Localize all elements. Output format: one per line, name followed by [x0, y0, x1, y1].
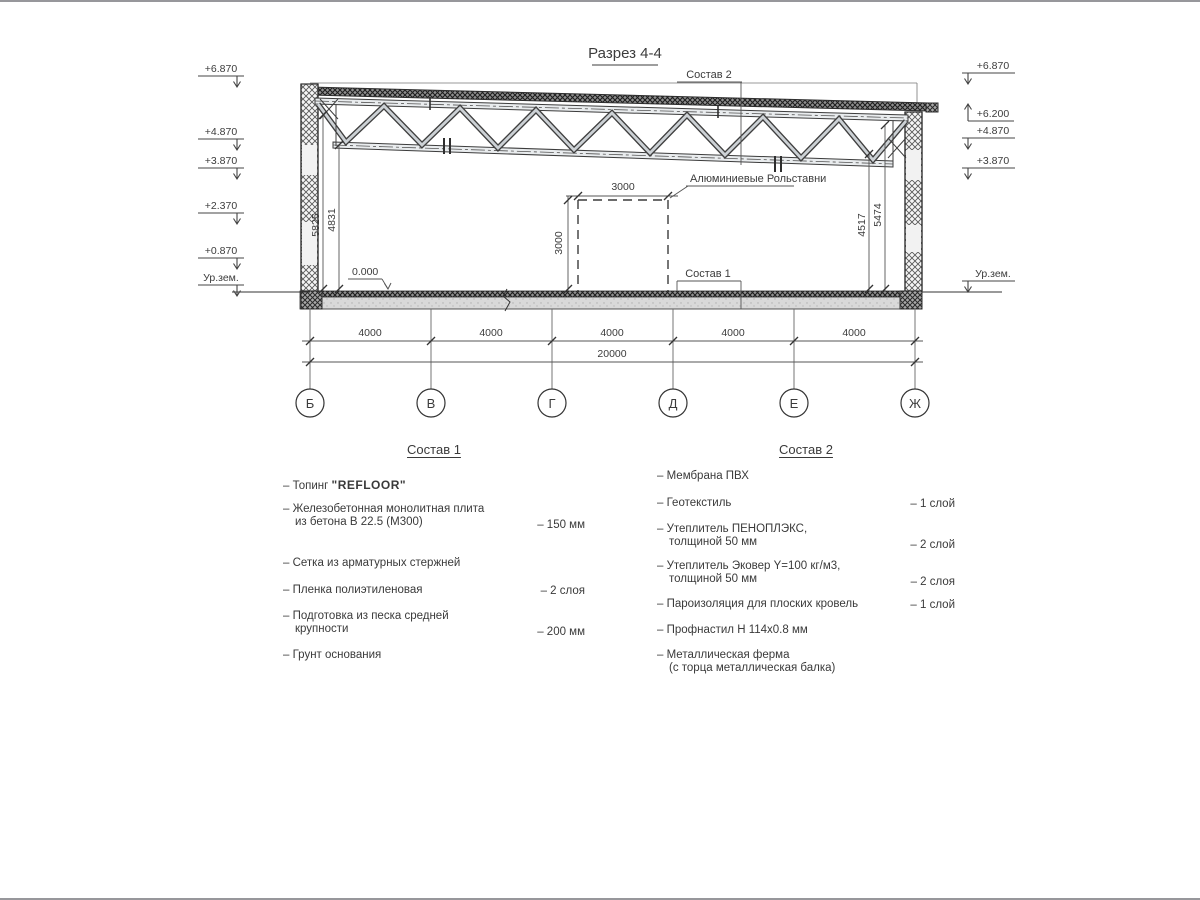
list-item: – Подготовка из песка средней крупности … [283, 610, 585, 639]
elev-left-0: +6.870 [198, 63, 244, 87]
bottom-dimensions: 4000 4000 4000 4000 4000 20000 [302, 309, 923, 389]
svg-text:Ур.зем.: Ур.зем. [203, 272, 239, 284]
right-footing [900, 291, 922, 309]
item-value: – 200 мм [537, 626, 585, 639]
elev-left-3: +2.370 [198, 200, 244, 224]
right-wall [905, 112, 922, 291]
axis-zh: Ж [909, 396, 921, 411]
door-width-dim: 3000 [611, 181, 635, 193]
list-item: – Железобетонная монолитная плита из бет… [283, 503, 585, 532]
floor-slab [232, 289, 1002, 311]
list-item: – Металлическая ферма (с торца металличе… [657, 649, 955, 678]
axis-b: Б [306, 396, 315, 411]
svg-text:+2.370: +2.370 [205, 200, 238, 212]
left-footing [301, 291, 322, 309]
axis-g: Г [548, 396, 555, 411]
elev-left-4: +0.870 [198, 245, 244, 269]
list-item: – Топинг "REFLOOR" [283, 479, 585, 493]
composition-1-title: Состав 1 [283, 443, 585, 456]
elev-right-2: +4.870 [962, 125, 1015, 149]
item-value: – 150 мм [537, 519, 585, 532]
dim-5825: 5825 [310, 213, 322, 237]
roof-edge-cap [926, 103, 938, 112]
span-dim-1: 4000 [358, 327, 382, 339]
svg-text:Состав 1: Состав 1 [685, 268, 731, 280]
svg-text:+4.870: +4.870 [205, 126, 238, 138]
svg-text:+0.870: +0.870 [205, 245, 238, 257]
brand-name: "REFLOOR" [332, 478, 407, 492]
svg-text:+4.870: +4.870 [977, 125, 1010, 137]
list-item: – Пленка полиэтиленовая – 2 слоя [283, 584, 585, 598]
section-drawing: Разрез 4-4 [0, 0, 1200, 440]
svg-text:+3.870: +3.870 [977, 155, 1010, 167]
list-item: – Профнастил Н 114х0.8 мм [657, 624, 955, 638]
svg-text:Ур.зем.: Ур.зем. [975, 268, 1011, 280]
svg-text:+6.200: +6.200 [977, 108, 1010, 120]
span-dim-5: 4000 [842, 327, 866, 339]
composition-2-list: Состав 2 – Мембрана ПВХ – Геотекстиль – … [657, 443, 955, 683]
axis-e: Е [790, 396, 799, 411]
list-item: – Сетка из арматурных стержней [283, 557, 585, 571]
list-item: – Грунт основания [283, 649, 585, 663]
dim-4517: 4517 [856, 213, 868, 237]
item-value: – 2 слоя [911, 576, 955, 589]
svg-text:+6.870: +6.870 [205, 63, 238, 75]
list-item: – Утеплитель ПЕНОПЛЭКС, толщиной 50 мм –… [657, 523, 955, 552]
item-value: – 1 слой [910, 498, 955, 511]
dim-4831: 4831 [326, 208, 338, 232]
item-value: – 1 слой [910, 599, 955, 612]
svg-text:Состав 2: Состав 2 [686, 69, 732, 81]
door-height-dim: 3000 [553, 231, 565, 255]
elev-right-0: +6.870 [962, 60, 1015, 84]
interior-dims [323, 115, 885, 291]
svg-text:0.000: 0.000 [352, 266, 378, 278]
span-dim-4: 4000 [721, 327, 745, 339]
span-dim-3: 4000 [600, 327, 624, 339]
composition-2-title: Состав 2 [657, 443, 955, 456]
axis-bubbles: Б В Г Д Е Ж [296, 389, 929, 417]
section-title: Разрез 4-4 [588, 45, 662, 62]
drawing-sheet: Разрез 4-4 [0, 0, 1200, 900]
elev-right-1: +6.200 [965, 104, 1015, 121]
elev-right-3: +3.870 [962, 155, 1015, 179]
list-item: – Геотекстиль – 1 слой [657, 497, 955, 511]
svg-text:+6.870: +6.870 [977, 60, 1010, 72]
item-value: – 2 слой [910, 539, 955, 552]
list-item: – Утеплитель Эковер Y=100 кг/м3, толщино… [657, 560, 955, 589]
door-leader-label: Алюминиевые Рольставни [690, 173, 826, 185]
elev-left-ground: Ур.зем. [198, 272, 244, 296]
list-item: – Мембрана ПВХ [657, 470, 955, 484]
brace-cross-right [888, 138, 906, 158]
elev-left-1: +4.870 [198, 126, 244, 150]
left-wall [301, 84, 318, 291]
elevation-marks-right: +6.870 +6.200 +4.870 +3.870 Ур.зем. [962, 60, 1015, 292]
elev-left-2: +3.870 [198, 155, 244, 179]
axis-d: Д [669, 396, 678, 411]
elev-right-ground: Ур.зем. [962, 268, 1015, 292]
axis-v: В [427, 396, 436, 411]
composition-1-list: Состав 1 – Топинг "REFLOOR" – Железобето… [283, 443, 585, 673]
elevation-marks-left: +6.870 +4.870 +3.870 +2.370 +0.870 Ур.зе… [198, 63, 244, 296]
dim-5474: 5474 [872, 203, 884, 227]
span-dim-2: 4000 [479, 327, 503, 339]
list-item: – Пароизоляция для плоских кровель – 1 с… [657, 598, 955, 612]
total-dim: 20000 [597, 348, 626, 360]
item-value: – 2 слоя [541, 585, 585, 598]
level-zero-mark: 0.000 [348, 266, 391, 289]
svg-text:+3.870: +3.870 [205, 155, 238, 167]
